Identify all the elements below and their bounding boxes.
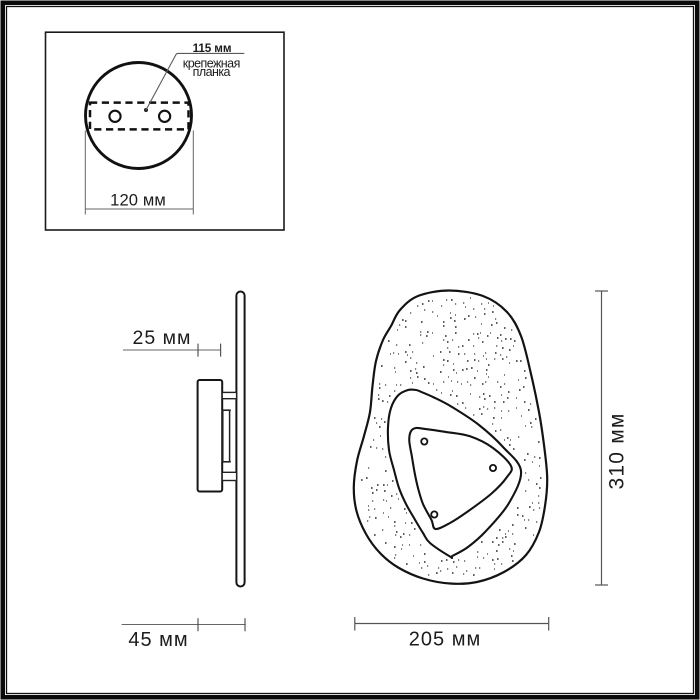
svg-text:планка: планка <box>193 65 231 79</box>
svg-text:25 мм: 25 мм <box>133 327 192 349</box>
svg-text:115 мм: 115 мм <box>193 42 232 55</box>
svg-text:205 мм: 205 мм <box>409 628 481 650</box>
svg-text:45 мм: 45 мм <box>128 629 188 651</box>
svg-text:120 мм: 120 мм <box>110 191 166 210</box>
svg-text:310 мм: 310 мм <box>606 413 629 490</box>
